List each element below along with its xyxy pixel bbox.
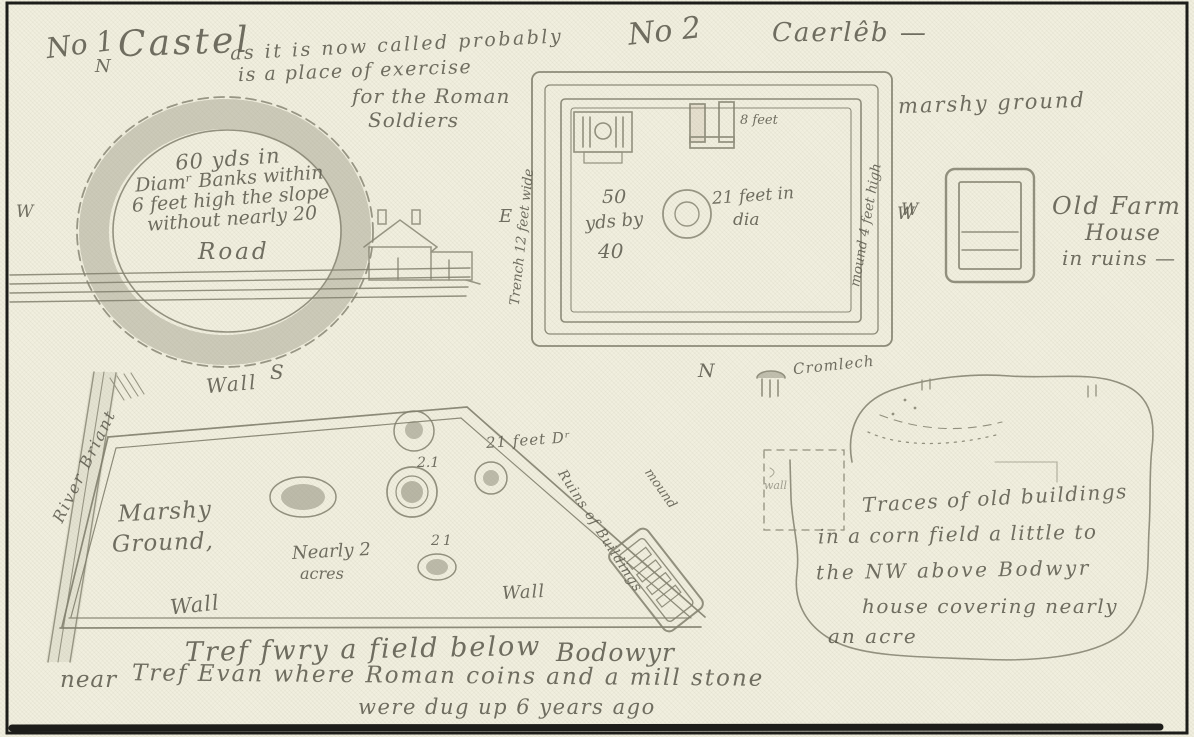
field-caption-line2: Tref Evan where Roman coins and a mill s… [132, 661, 765, 691]
house-icon [364, 210, 480, 284]
road-label: Road [198, 240, 270, 264]
sketch1-note-line3: Soldiers [368, 110, 459, 131]
marshy-label-line2: Ground, [112, 529, 215, 557]
farmhouse-west-label: W [897, 206, 914, 224]
sketch1-west-label: W [16, 204, 33, 222]
sketch2-title: Caerlêb — [772, 20, 928, 47]
hut-diameter-21a: 2.1 [417, 456, 439, 471]
farmhouse-plan [946, 169, 1034, 282]
cornfield-wall-mark: wall [764, 480, 787, 492]
sketch1-circle-text: 60 yds in Diamʳ Banks within 6 feet high… [102, 139, 357, 238]
field-caption-line3: were dug up 6 years ago [358, 696, 656, 718]
sketch2-number: No 2 [627, 12, 703, 51]
hut-diameter-21b: 21 [431, 534, 455, 549]
sketch1-note-line2: for the Roman [352, 86, 510, 107]
field-wall-left-label: Wall [169, 591, 221, 618]
acreage-label-line1: Nearly 2 [292, 541, 372, 564]
dimension-40: 40 [598, 241, 623, 262]
road-lines [10, 268, 470, 302]
cromlech-icon [757, 371, 785, 397]
cornfield-line3: the NW above Bodwyr [816, 558, 1091, 584]
field-caption-bodowyr: Bodowyr [556, 640, 675, 666]
cornfield-line4: house covering nearly [862, 596, 1118, 617]
sketch2-east-label: E [499, 208, 512, 227]
sketch1-wall-label: Wall [205, 372, 258, 397]
caerleb-building-remains [574, 112, 632, 163]
field-caption-near: near [60, 668, 117, 692]
cornfield-line5: an acre [828, 626, 918, 647]
marshy-label-line1: Marshy [117, 498, 212, 527]
acreage-label-line2: acres [300, 566, 344, 583]
farmhouse-label2: House [1085, 222, 1161, 245]
sketch1-south-label: S [270, 362, 284, 383]
sketch1-north-label: N [95, 58, 111, 77]
caerleb-pit-circle [663, 190, 711, 238]
caerleb-u-structure [690, 102, 734, 148]
eight-feet-label: 8 feet [740, 114, 778, 128]
cornfield-line2: in a corn field a little to [818, 522, 1098, 548]
sketch2-north-label: N [698, 362, 715, 382]
sketch-map-page: No 1 N Castel as it is now called probab… [0, 0, 1194, 737]
farmhouse-label1: Old Farm [1052, 194, 1182, 219]
farmhouse-label3: in ruins — [1062, 248, 1176, 269]
pit-diameter-label2: dia [733, 212, 759, 230]
field-wall-right-label: Wall [502, 583, 546, 604]
caerleb-enclosure [532, 72, 892, 346]
dimension-50: 50 [602, 188, 626, 208]
